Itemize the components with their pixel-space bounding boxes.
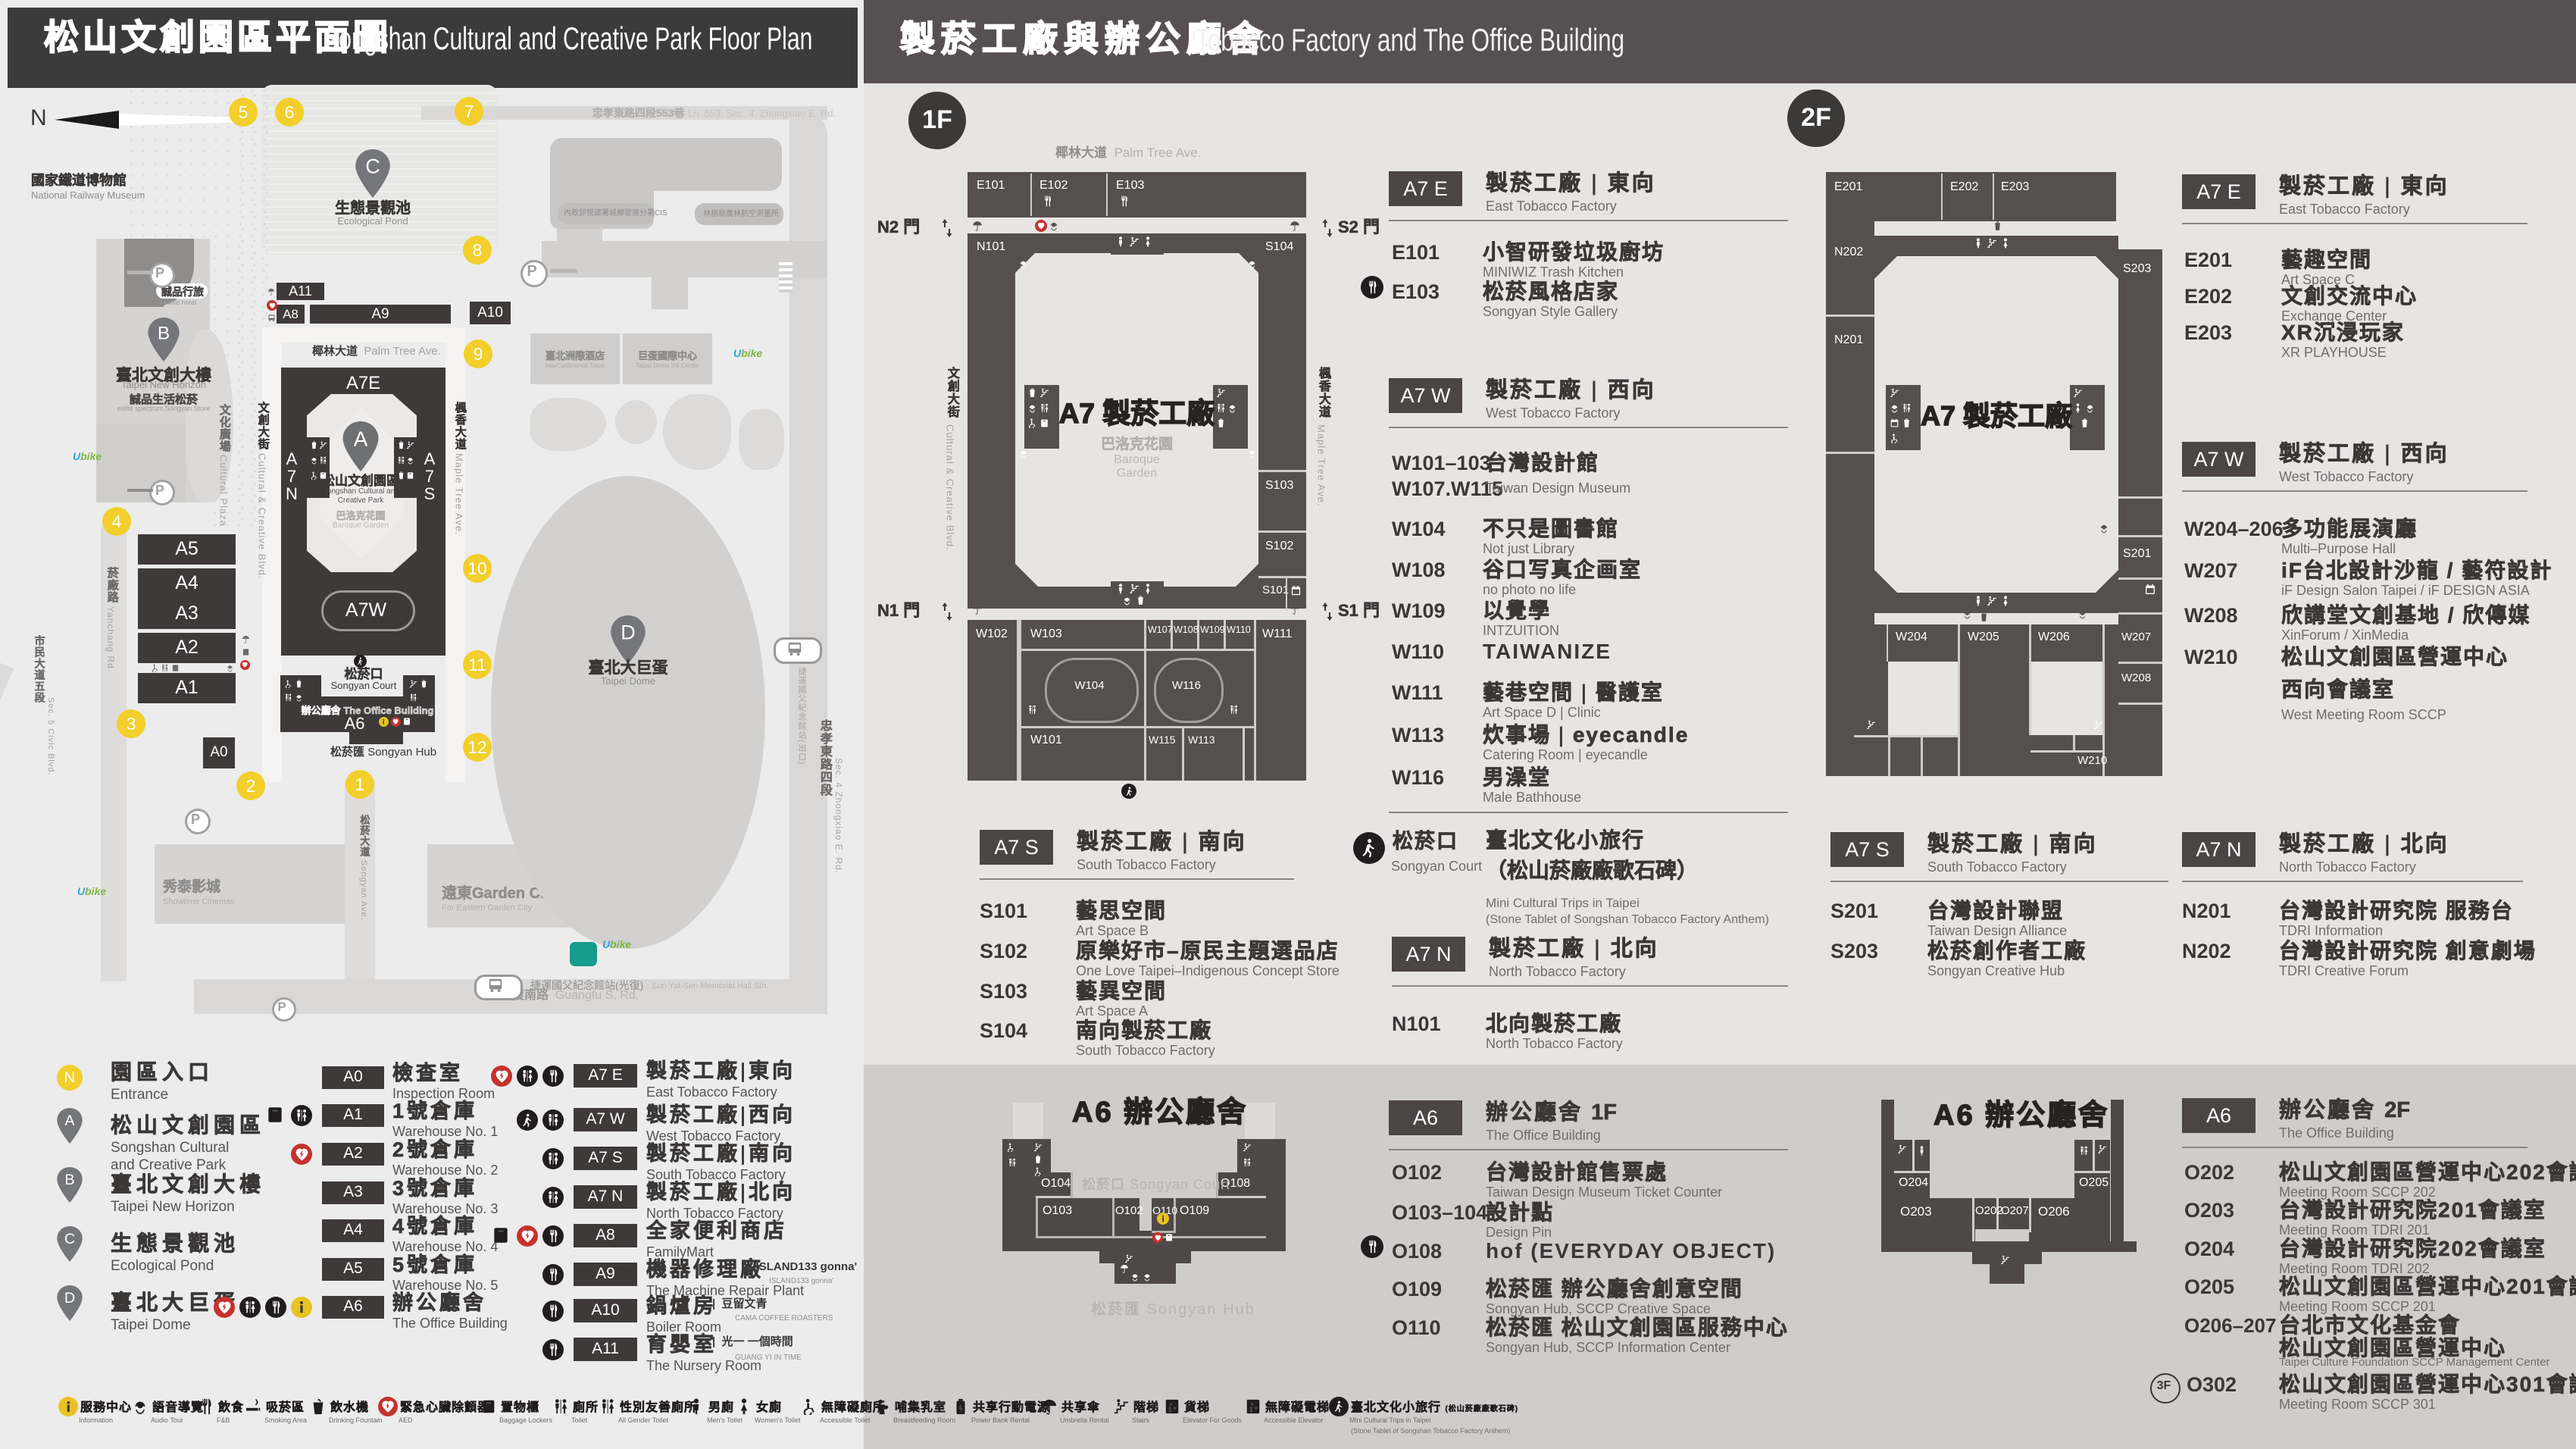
- svg-text:D: D: [621, 621, 636, 643]
- svg-text:A: A: [354, 427, 368, 450]
- svg-text:B: B: [64, 1172, 74, 1188]
- svg-text:D: D: [64, 1290, 75, 1307]
- svg-text:A: A: [64, 1113, 75, 1129]
- svg-text:B: B: [158, 323, 170, 343]
- svg-text:C: C: [365, 155, 380, 177]
- svg-text:C: C: [64, 1231, 75, 1247]
